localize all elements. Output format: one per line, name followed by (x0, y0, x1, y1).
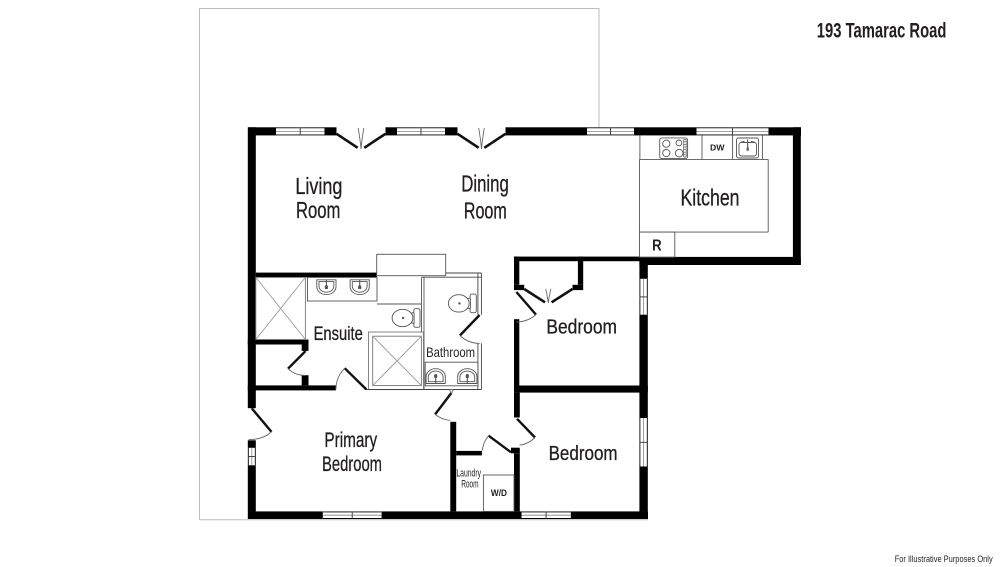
svg-text:Room: Room (296, 197, 340, 223)
svg-text:Room: Room (461, 478, 478, 490)
svg-text:Ensuite: Ensuite (314, 324, 363, 345)
svg-text:193 Tamarac Road: 193 Tamarac Road (817, 19, 947, 42)
svg-text:Bedroom: Bedroom (322, 453, 382, 476)
svg-text:Kitchen: Kitchen (681, 185, 740, 211)
svg-text:Dining: Dining (461, 171, 509, 197)
svg-text:R: R (652, 238, 662, 255)
svg-text:Bathroom: Bathroom (426, 344, 475, 360)
svg-text:DW: DW (710, 143, 725, 152)
svg-text:Room: Room (464, 197, 507, 223)
svg-text:For Illustrative Purposes Only: For Illustrative Purposes Only (895, 554, 993, 565)
svg-text:Bedroom: Bedroom (546, 316, 617, 338)
svg-text:W/D: W/D (491, 488, 507, 499)
svg-text:Bedroom: Bedroom (549, 443, 618, 465)
svg-text:Living: Living (295, 173, 342, 199)
svg-text:Primary: Primary (324, 429, 377, 452)
